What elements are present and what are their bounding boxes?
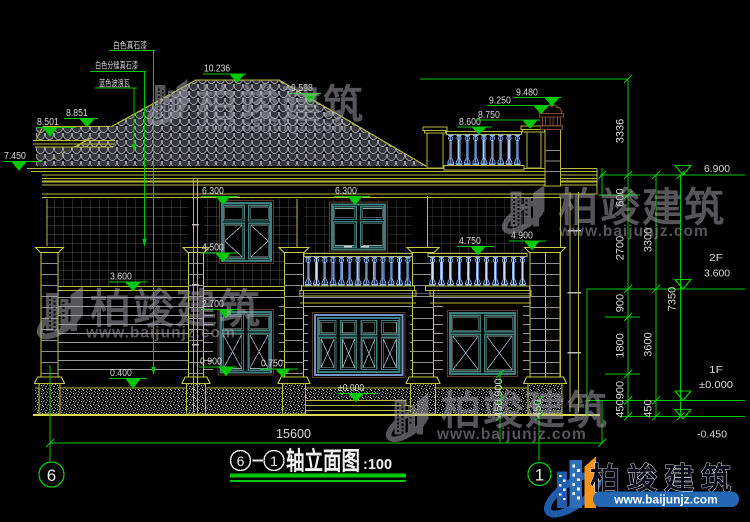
svg-text:7350: 7350 (667, 287, 679, 311)
svg-text:1: 1 (270, 453, 278, 469)
svg-text:3.600: 3.600 (704, 269, 730, 280)
svg-text:450: 450 (643, 399, 655, 417)
svg-text:轴立面图: 轴立面图 (286, 447, 360, 476)
svg-text:6: 6 (47, 466, 56, 485)
svg-text:白色真石漆: 白色真石漆 (113, 40, 147, 51)
svg-text::100: :100 (363, 457, 392, 473)
svg-text:6.900: 6.900 (704, 164, 730, 175)
svg-text:1F: 1F (709, 365, 723, 376)
svg-text:蓝色波浪瓦: 蓝色波浪瓦 (99, 78, 130, 89)
svg-text:900: 900 (615, 381, 627, 399)
svg-text:www.baijunjz.com: www.baijunjz.com (558, 223, 709, 240)
svg-text:4.500: 4.500 (202, 243, 224, 254)
svg-text:8.501: 8.501 (37, 117, 59, 128)
svg-text:6.300: 6.300 (202, 186, 224, 197)
svg-text:1800: 1800 (615, 333, 627, 357)
svg-text:7.450: 7.450 (4, 151, 26, 162)
svg-text:1: 1 (535, 466, 544, 485)
svg-text:-0.450: -0.450 (697, 430, 727, 441)
svg-text:3600: 3600 (643, 332, 655, 356)
svg-text:www.baijunjz.com: www.baijunjz.com (197, 118, 348, 135)
svg-text:0.400: 0.400 (110, 368, 132, 379)
svg-text:www.baijunjz.com: www.baijunjz.com (436, 426, 587, 443)
svg-text:柏竣建筑: 柏竣建筑 (590, 462, 738, 496)
svg-text:3336: 3336 (615, 119, 627, 143)
svg-text:www.baijunjz.com: www.baijunjz.com (85, 325, 236, 342)
svg-text:8.851: 8.851 (66, 108, 88, 119)
svg-text:±0.000: ±0.000 (699, 380, 733, 391)
svg-text:2F: 2F (709, 253, 723, 264)
svg-text:6.300: 6.300 (335, 186, 357, 197)
svg-text:6: 6 (237, 453, 245, 469)
svg-text:450: 450 (615, 399, 627, 417)
svg-text:±0.000: ±0.000 (338, 383, 364, 394)
svg-text:900: 900 (615, 294, 627, 312)
svg-text:8.750: 8.750 (478, 110, 500, 121)
svg-text:3.600: 3.600 (110, 272, 132, 283)
svg-text:白色分缝真石漆: 白色分缝真石漆 (95, 60, 138, 71)
svg-text:0.900: 0.900 (200, 357, 222, 368)
svg-text:9.250: 9.250 (489, 96, 511, 107)
svg-text:9.480: 9.480 (516, 88, 538, 99)
svg-text:www.baijunjz.com: www.baijunjz.com (613, 493, 718, 507)
svg-text:15600: 15600 (276, 427, 311, 441)
svg-text:0.750: 0.750 (261, 359, 283, 370)
svg-text:10.236: 10.236 (204, 64, 230, 75)
svg-text:4.750: 4.750 (459, 236, 481, 247)
